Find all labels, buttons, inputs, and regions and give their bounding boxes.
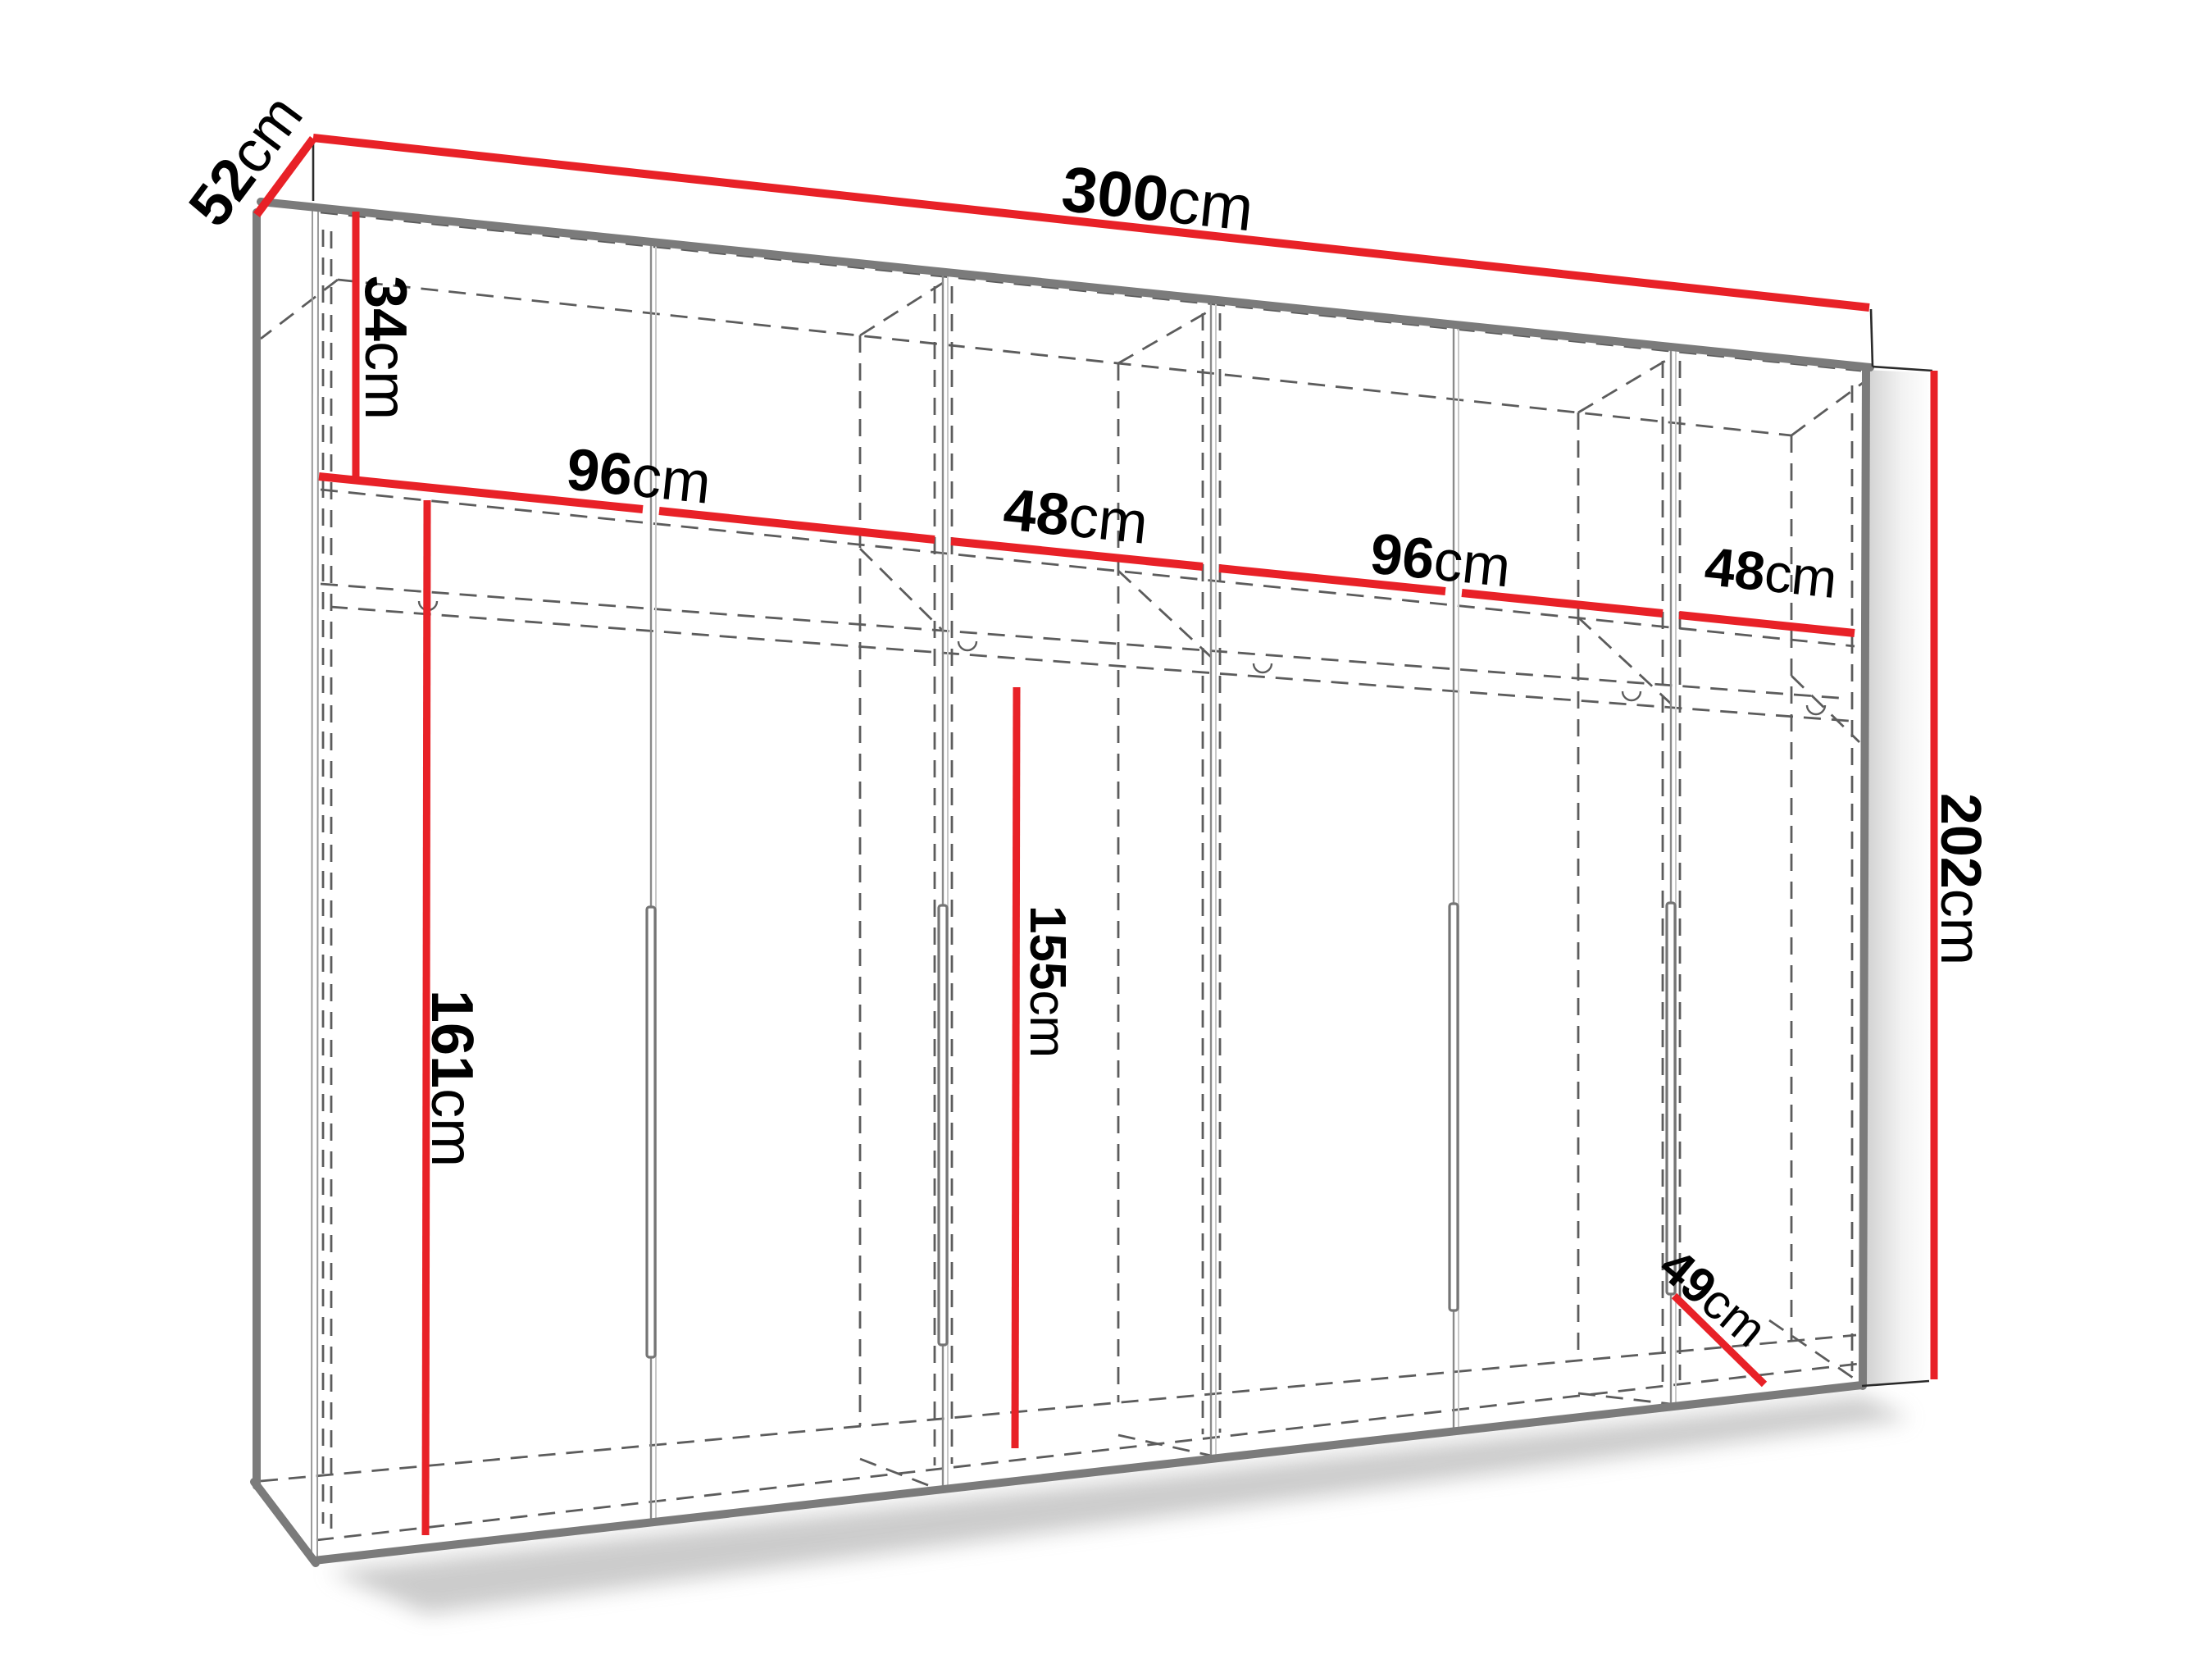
right-panel-top-edge	[1873, 367, 1932, 371]
door-handle	[939, 905, 947, 1345]
left-side-panel	[257, 205, 315, 1561]
diagram-canvas: 300cm 52cm 34cm 96cm 48cm 96cm 48cm 161c…	[0, 0, 2212, 1659]
door-handle	[1667, 903, 1675, 1294]
right-front-edge	[1863, 369, 1866, 1386]
front-left-edge-outer	[317, 207, 318, 1558]
label-hanging-161: 161cm	[419, 990, 485, 1167]
door-handle	[647, 907, 655, 1357]
front-left-edge-inner	[312, 207, 312, 1560]
label-upper-34: 34cm	[353, 276, 418, 420]
dim-line-hanging-155	[1015, 687, 1017, 1448]
front-face	[314, 205, 1869, 1561]
door-handle	[1450, 904, 1458, 1310]
wardrobe-dimension-diagram: 300cm 52cm 34cm 96cm 48cm 96cm 48cm 161c…	[0, 0, 2212, 1659]
crown-right-corner-edge	[1871, 309, 1873, 367]
label-height-202: 202cm	[1929, 793, 1993, 965]
right-side-panel	[1864, 370, 1932, 1385]
label-hanging-155: 155cm	[1020, 905, 1076, 1058]
